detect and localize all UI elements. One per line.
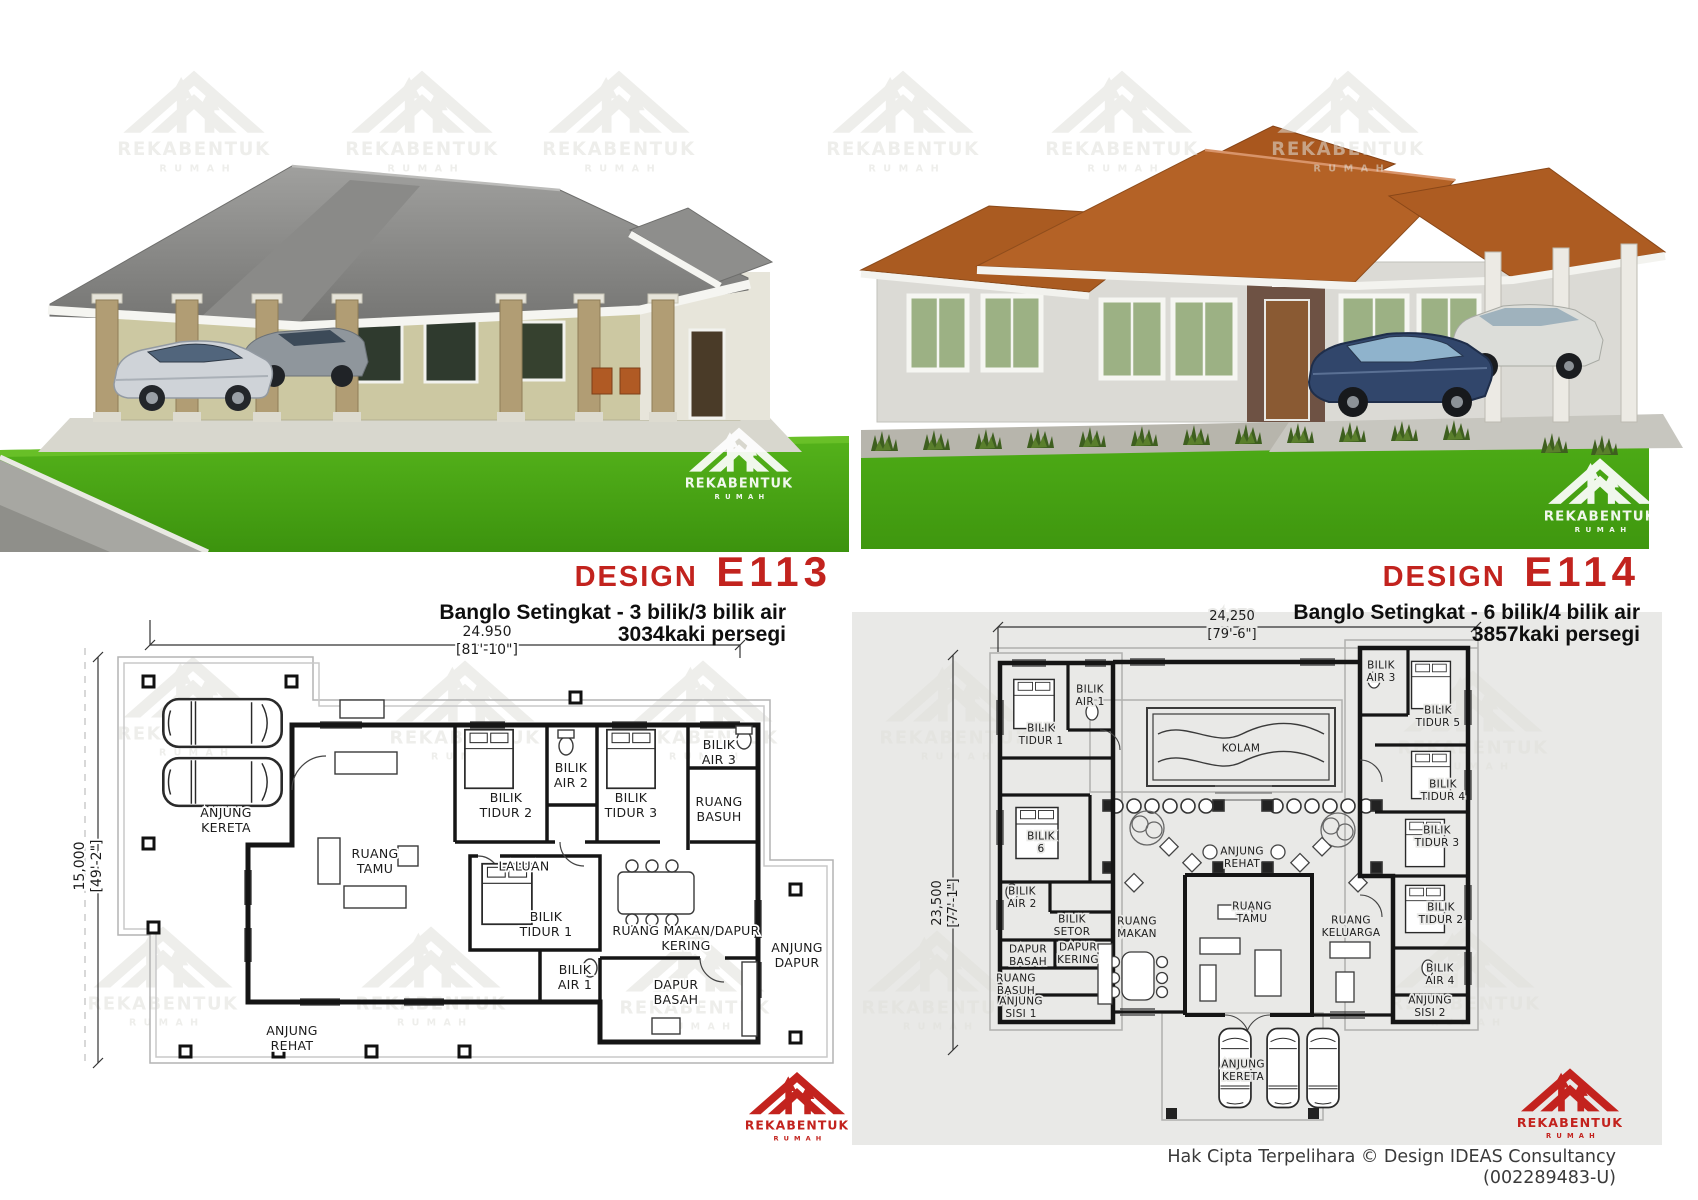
dim-height: 15,000 [72, 842, 88, 891]
dim-height: 23,500 [930, 880, 945, 926]
design-area: 3034kaki persegi [380, 624, 786, 646]
front-door [1265, 300, 1309, 420]
room-label: RUANG MAKAN/DAPURKERING [612, 923, 759, 953]
title-block-e113: DESIGN E113 Banglo Setingkat - 3 bilik/3… [380, 553, 832, 646]
copyright-line: Hak Cipta Terpelihara © Design IDEAS Con… [1167, 1147, 1616, 1168]
room-label: DAPURBASAH [654, 977, 699, 1007]
room-label: RUANGKELUARGA [1322, 914, 1381, 939]
room-label: ANJUNGSISI 2 [1408, 994, 1452, 1019]
room-label: RUANGBASUH [996, 972, 1036, 997]
page: REKABENTUK RUMAH [0, 0, 1698, 1200]
design-word: DESIGN [575, 561, 698, 593]
design-subtitle: Banglo Setingkat - 6 bilik/4 bilik air [1188, 602, 1640, 624]
room-label: ANJUNGKERETA [1221, 1058, 1265, 1083]
registration-number: (002289483-U) [1167, 1168, 1616, 1189]
room-label: RUANGTAMU [352, 846, 399, 876]
brand-logo-red [1517, 1068, 1623, 1140]
design-title: DESIGN E113 [380, 553, 832, 601]
render-house-e114 [849, 0, 1698, 552]
car-plan [163, 699, 281, 747]
room-label: BILIKAIR 1 [558, 962, 592, 992]
room-label: BILIKAIR 4 [1425, 962, 1454, 987]
floorplan-e113: 24.950 [81'-10"] 15,000 [49'-2"] [40, 560, 850, 1150]
dim-height-ft: [49'-2"] [89, 840, 105, 893]
walls [997, 648, 1471, 1039]
design-subtitle: Banglo Setingkat - 3 bilik/3 bilik air [380, 602, 786, 624]
design-title: DESIGN E114 [1188, 553, 1640, 601]
room-label: BILIKSETOR [1054, 913, 1091, 938]
render-house-e113 [0, 0, 849, 552]
brand-logo-red [745, 1072, 849, 1142]
room-label: LALUAN [499, 858, 550, 873]
room-label: BILIKTIDUR 2 [479, 790, 533, 820]
dim-height-ft: [77'-1"] [946, 878, 961, 927]
room-label: ANJUNGDAPUR [771, 940, 823, 970]
room-label: KOLAM [1222, 743, 1260, 755]
room-label: ANJUNGREHAT [266, 1023, 318, 1053]
room-label: DAPURBASAH [1009, 943, 1047, 968]
room-label: RUANGTAMU [1232, 900, 1272, 925]
floorplan-e114: 24,250 [79'-6"] 23,500 [77'-1"] [852, 560, 1698, 1150]
room-label: BILIKAIR 3 [1366, 659, 1395, 684]
patio-chair [620, 368, 640, 394]
patio-chair [592, 368, 612, 394]
design-code: E114 [1524, 548, 1640, 595]
room-label: ANJUNGREHAT [1220, 845, 1264, 870]
room-label: BILIKAIR 1 [1075, 683, 1104, 708]
copyright: Hak Cipta Terpelihara © Design IDEAS Con… [1167, 1147, 1616, 1190]
car-plan [163, 758, 281, 806]
design-area: 3857kaki persegi [1188, 624, 1640, 646]
room-label: BILIKTIDUR 3 [604, 790, 658, 820]
design-code: E113 [716, 548, 832, 595]
room-label: ANJUNGSISI 1 [999, 995, 1043, 1020]
room-label: ANJUNGKERETA [200, 805, 252, 835]
room-label: BILIKAIR 2 [554, 760, 588, 790]
room-label: RUANGBASUH [696, 794, 743, 824]
title-block-e114: DESIGN E114 Banglo Setingkat - 6 bilik/4… [1188, 553, 1640, 646]
room-label: BILIKAIR 2 [1007, 885, 1036, 910]
room-label: DAPURKERING [1057, 941, 1099, 966]
design-word: DESIGN [1383, 561, 1506, 593]
room-label: RUANGMAKAN [1117, 915, 1157, 940]
room-label: BILIKAIR 3 [702, 737, 736, 767]
